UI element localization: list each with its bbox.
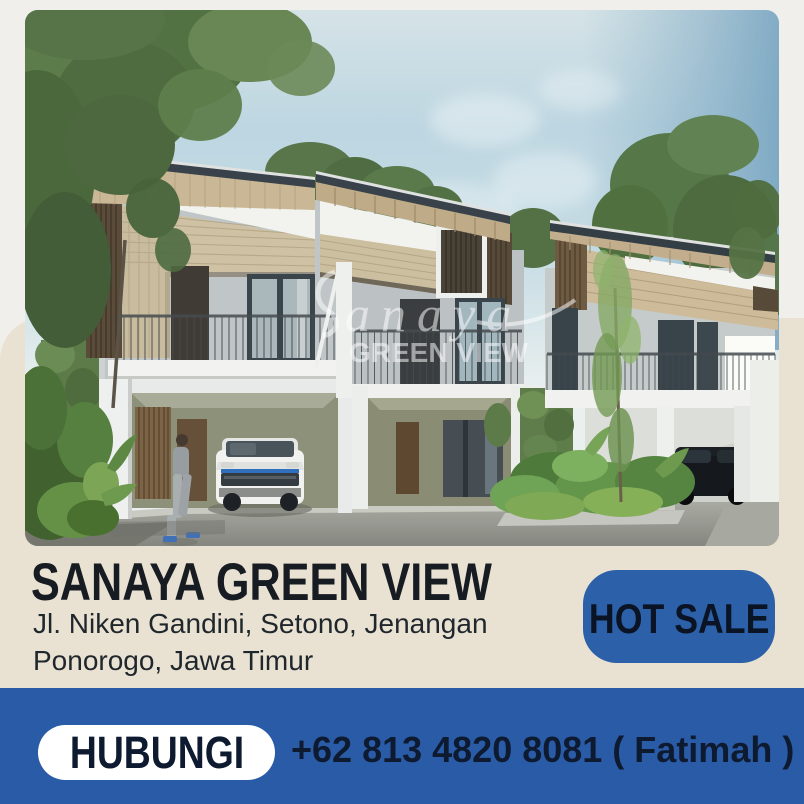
svg-text:anaya: anaya — [345, 286, 522, 342]
svg-text:GREEN VIEW: GREEN VIEW — [349, 337, 528, 368]
